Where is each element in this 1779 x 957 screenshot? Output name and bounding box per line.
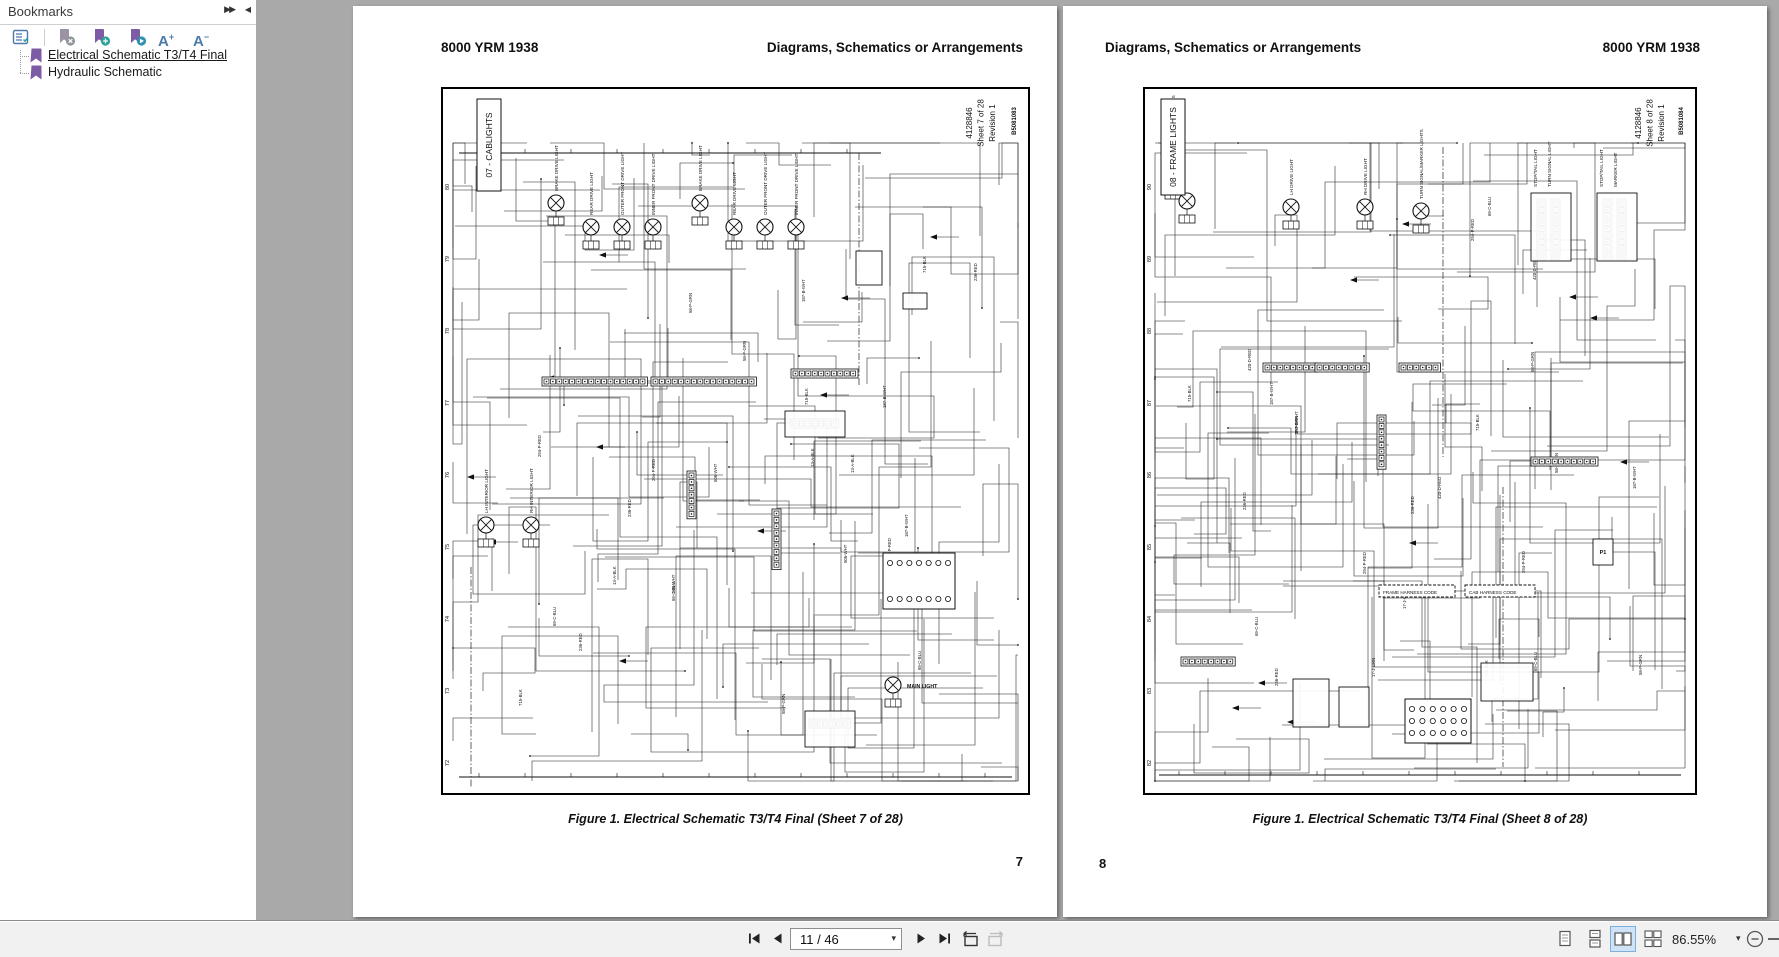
bookmark-icon <box>30 65 43 85</box>
goto-bookmark-button[interactable] <box>128 28 148 48</box>
svg-text:P1: P1 <box>1600 550 1607 556</box>
svg-text:B5081083: B5081083 <box>1012 106 1018 134</box>
bookmark-add-icon <box>92 28 111 47</box>
svg-text:715-BLK: 715-BLK <box>922 256 927 273</box>
previous-page-button[interactable] <box>766 927 790 951</box>
zoom-slider[interactable] <box>1768 938 1779 940</box>
increase-text-size-button[interactable]: A+ <box>158 28 184 48</box>
svg-text:13-A-BLK: 13-A-BLK <box>612 566 617 585</box>
schematic-svg-sheet-7: 236-RED236-RED236-RED715-BLK715-BLK715-B… <box>441 87 1030 795</box>
svg-text:86: 86 <box>1147 472 1153 478</box>
decrease-text-size-button[interactable]: A− <box>193 28 219 48</box>
svg-text:294-P-RED: 294-P-RED <box>1362 552 1367 574</box>
svg-text:85: 85 <box>1147 544 1153 550</box>
page-number: 7 <box>1016 854 1023 869</box>
svg-text:FRAME HARNESS CODE: FRAME HARNESS CODE <box>1383 590 1437 595</box>
zoom-out-button[interactable] <box>1746 930 1764 948</box>
bookmark-item-label: Hydraulic Schematic <box>48 65 162 79</box>
svg-text:OUTER FRONT DRIVE LIGHT: OUTER FRONT DRIVE LIGHT <box>763 152 768 215</box>
svg-text:90: 90 <box>1147 184 1153 190</box>
svg-text:REAR DRIVE LIGHT: REAR DRIVE LIGHT <box>732 172 737 215</box>
svg-text:294-P-RED: 294-P-RED <box>651 459 656 481</box>
svg-text:236-RED: 236-RED <box>1274 668 1279 686</box>
schematic-figure-sheet-7: 236-RED236-RED236-RED715-BLK715-BLK715-B… <box>441 87 1030 795</box>
svg-text:08 - FRAME LIGHTS: 08 - FRAME LIGHTS <box>1168 107 1178 187</box>
svg-text:294-P-RED: 294-P-RED <box>1521 551 1526 573</box>
bookmarks-panel-title: Bookmarks <box>8 4 73 19</box>
svg-text:77: 77 <box>445 400 451 406</box>
svg-text:83: 83 <box>1147 688 1153 694</box>
svg-text:236-RED: 236-RED <box>578 633 583 651</box>
svg-text:80: 80 <box>445 184 451 190</box>
svg-text:LH INTERIOR LIGHT: LH INTERIOR LIGHT <box>484 469 489 513</box>
bookmarks-panel: Bookmarks ▶▶ ◀ <box>0 0 257 920</box>
bookmarks-toolbar: A+ A− <box>0 27 256 49</box>
bookmark-delete-icon <box>57 28 76 47</box>
schematic-figure-sheet-8: 294-P-RED294-P-RED294-P-RED187-B-WHT187-… <box>1143 87 1697 795</box>
page-header-right: 8000 YRM 1938 <box>1603 40 1700 55</box>
facing-pages-view-button[interactable] <box>1610 926 1636 952</box>
svg-text:STOP/TAIL LIGHT: STOP/TAIL LIGHT <box>1599 149 1604 187</box>
svg-text:187-B-WHT: 187-B-WHT <box>882 385 887 408</box>
svg-text:72: 72 <box>445 760 451 766</box>
page-header-left: 8000 YRM 1938 <box>441 40 538 55</box>
svg-text:CAB HARNESS CODE: CAB HARNESS CODE <box>1469 590 1516 595</box>
svg-text:MAIN LIGHT: MAIN LIGHT <box>907 684 938 690</box>
chevrons-right-icon[interactable]: ▶▶ <box>224 4 234 15</box>
figure-caption: Figure 1. Electrical Schematic T3/T4 Fin… <box>441 812 1030 826</box>
page-number-box: ▾ <box>790 928 902 950</box>
svg-text:715-BLK: 715-BLK <box>1475 414 1480 431</box>
next-page-button[interactable] <box>908 927 932 951</box>
svg-text:715-BLK: 715-BLK <box>1187 385 1192 402</box>
svg-text:4128846: 4128846 <box>965 107 974 139</box>
svg-text:69-C-BLU: 69-C-BLU <box>917 651 922 670</box>
document-page-7: 8000 YRM 1938 Diagrams, Schematics or Ar… <box>353 6 1057 917</box>
svg-text:187-B-WHT: 187-B-WHT <box>1632 466 1637 489</box>
page-header-left: Diagrams, Schematics or Arrangements <box>1105 40 1361 55</box>
svg-text:187-B-WHT: 187-B-WHT <box>1269 382 1274 405</box>
svg-text:STOP/TAIL LIGHT: STOP/TAIL LIGHT <box>1533 149 1538 187</box>
svg-text:715-BLK: 715-BLK <box>518 689 523 706</box>
svg-text:88: 88 <box>1147 328 1153 334</box>
continuous-view-button[interactable] <box>1582 926 1608 952</box>
bookmarks-tree: Electrical Schematic T3/T4 Final Hydraul… <box>0 47 256 81</box>
svg-text:420-D-RED: 420-D-RED <box>1437 477 1442 499</box>
bookmarks-panel-header: Bookmarks ▶▶ ◀ <box>0 0 256 25</box>
single-page-view-button[interactable] <box>1552 926 1578 952</box>
svg-text:82: 82 <box>1147 760 1153 766</box>
previous-page-icon <box>771 931 786 946</box>
bottom-toolbar: ▾ <box>0 920 1779 957</box>
continuous-view-icon <box>1585 929 1605 949</box>
document-canvas: 8000 YRM 1938 Diagrams, Schematics or Ar… <box>0 0 1779 920</box>
svg-text:89: 89 <box>1147 256 1153 262</box>
page-number: 8 <box>1099 856 1106 871</box>
svg-text:69-C-BLU: 69-C-BLU <box>671 582 676 601</box>
svg-text:236-RED: 236-RED <box>1410 496 1415 514</box>
svg-text:294-P-RED: 294-P-RED <box>1470 219 1475 241</box>
svg-text:69-C-BLU: 69-C-BLU <box>552 607 557 626</box>
svg-text:INNER FRONT DRIVE LIGHT: INNER FRONT DRIVE LIGHT <box>651 153 656 215</box>
svg-text:236-RED: 236-RED <box>1242 492 1247 510</box>
first-page-icon <box>747 931 762 946</box>
svg-text:79: 79 <box>445 256 451 262</box>
delete-bookmark-button[interactable] <box>57 28 77 48</box>
svg-text:58-P-GRN: 58-P-GRN <box>1530 352 1535 372</box>
svg-text:17-J-GRN: 17-J-GRN <box>1371 658 1376 677</box>
svg-text:4128846: 4128846 <box>1634 107 1643 139</box>
zoom-dropdown-caret-icon[interactable]: ▾ <box>1736 933 1741 944</box>
last-page-icon <box>937 931 952 946</box>
svg-text:58-P-GRN: 58-P-GRN <box>688 293 693 313</box>
last-page-button[interactable] <box>932 927 956 951</box>
svg-text:76: 76 <box>445 472 451 478</box>
svg-text:236-RED: 236-RED <box>973 263 978 281</box>
svg-text:Sheet 8 of 28: Sheet 8 of 28 <box>1646 99 1655 147</box>
options-list-icon <box>12 28 30 46</box>
svg-text:TURN SIGNAL/MARKER LIGHTS: TURN SIGNAL/MARKER LIGHTS <box>1419 129 1424 199</box>
continuous-facing-view-button[interactable] <box>1640 926 1666 952</box>
svg-text:58-P-GRN: 58-P-GRN <box>781 694 786 714</box>
svg-text:236-RED: 236-RED <box>627 499 632 517</box>
collapse-panel-icon[interactable]: ◀ <box>245 5 251 14</box>
svg-text:LH DRIVE LIGHT: LH DRIVE LIGHT <box>1289 159 1294 195</box>
svg-text:69-C-BLU: 69-C-BLU <box>1487 197 1492 216</box>
bookmark-item-hydraulic-schematic[interactable]: Hydraulic Schematic <box>0 64 256 81</box>
svg-text:69-C-BLU: 69-C-BLU <box>1533 652 1538 671</box>
svg-text:84: 84 <box>1147 616 1153 622</box>
page-number-input[interactable] <box>791 929 892 949</box>
svg-text:OUTER FRONT DRIVE LIGHT: OUTER FRONT DRIVE LIGHT <box>620 152 625 215</box>
previous-view-button[interactable] <box>958 927 982 951</box>
single-page-view-icon <box>1555 929 1575 949</box>
previous-view-icon <box>960 931 980 948</box>
next-page-icon <box>913 931 928 946</box>
svg-text:MARKER LIGHT: MARKER LIGHT <box>1613 152 1618 187</box>
bookmark-goto-icon <box>128 28 147 47</box>
svg-text:Revision 1: Revision 1 <box>988 104 997 142</box>
bookmark-options-button[interactable] <box>12 28 32 48</box>
svg-text:69-C-BLU: 69-C-BLU <box>1254 617 1259 636</box>
svg-text:Sheet 7 of 28: Sheet 7 of 28 <box>977 99 986 147</box>
next-view-button[interactable] <box>984 927 1008 951</box>
svg-text:TURN SIGNAL LIGHT: TURN SIGNAL LIGHT <box>1547 141 1552 187</box>
svg-text:506-WHT: 506-WHT <box>713 463 718 482</box>
svg-text:BRAKE DRIVE LIGHT: BRAKE DRIVE LIGHT <box>554 145 559 191</box>
svg-text:73: 73 <box>445 688 451 694</box>
svg-text:58-P-GRN: 58-P-GRN <box>742 341 747 361</box>
svg-text:78: 78 <box>445 328 451 334</box>
svg-text:17-J-GRN: 17-J-GRN <box>1294 416 1299 435</box>
svg-text:13-A-BLK: 13-A-BLK <box>850 454 855 473</box>
first-page-button[interactable] <box>742 927 766 951</box>
svg-text:INNER FRONT DRIVE LIGHT: INNER FRONT DRIVE LIGHT <box>794 153 799 215</box>
toolbar-divider <box>44 29 45 46</box>
add-bookmark-button[interactable] <box>92 28 112 48</box>
svg-text:B5081084: B5081084 <box>1679 106 1685 134</box>
svg-text:BRAKE DRIVE LIGHT: BRAKE DRIVE LIGHT <box>698 145 703 191</box>
svg-text:294-P-RED: 294-P-RED <box>537 435 542 457</box>
svg-text:REAR DRIVE LIGHT: REAR DRIVE LIGHT <box>589 172 594 215</box>
svg-text:187-B-WHT: 187-B-WHT <box>801 279 806 302</box>
figure-caption: Figure 1. Electrical Schematic T3/T4 Fin… <box>1143 812 1697 826</box>
svg-text:07 - CABLIGHTS: 07 - CABLIGHTS <box>484 112 494 178</box>
svg-text:75: 75 <box>445 544 451 550</box>
svg-text:506-WHT: 506-WHT <box>843 544 848 563</box>
svg-text:Revision 1: Revision 1 <box>1657 104 1666 142</box>
svg-text:87: 87 <box>1147 400 1153 406</box>
bookmark-item-label: Electrical Schematic T3/T4 Final <box>48 48 227 62</box>
facing-pages-view-icon <box>1613 929 1633 949</box>
svg-text:RH INTERIOR LIGHT: RH INTERIOR LIGHT <box>529 468 534 513</box>
page-dropdown-caret-icon[interactable]: ▾ <box>891 933 896 944</box>
svg-text:715-BLK: 715-BLK <box>804 388 809 405</box>
continuous-facing-view-icon <box>1643 929 1663 949</box>
svg-text:74: 74 <box>445 616 451 622</box>
svg-text:187-B-WHT: 187-B-WHT <box>904 514 909 537</box>
svg-text:13-A-BLK: 13-A-BLK <box>810 448 815 467</box>
svg-text:58-P-GRN: 58-P-GRN <box>1638 655 1643 675</box>
zoom-level-value[interactable]: 86.55% <box>1672 932 1716 947</box>
page-header-right: Diagrams, Schematics or Arrangements <box>767 40 1023 55</box>
svg-text:420-D-RED: 420-D-RED <box>1247 349 1252 371</box>
bookmark-item-electrical-schematic[interactable]: Electrical Schematic T3/T4 Final <box>0 47 256 64</box>
document-page-8: Diagrams, Schematics or Arrangements 800… <box>1063 6 1767 917</box>
zoom-out-icon <box>1746 930 1764 948</box>
next-view-icon <box>986 931 1006 948</box>
svg-text:RH DRIVE LIGHT: RH DRIVE LIGHT <box>1363 158 1368 195</box>
schematic-svg-sheet-8: 294-P-RED294-P-RED294-P-RED187-B-WHT187-… <box>1143 87 1697 795</box>
